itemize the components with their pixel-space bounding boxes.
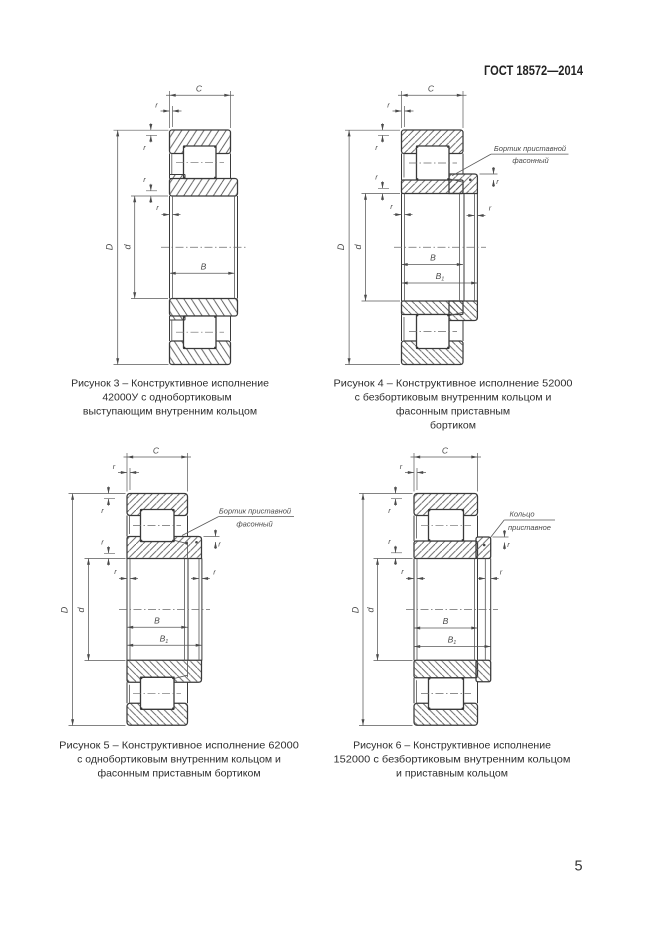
svg-text:фасонный: фасонный: [236, 519, 273, 528]
svg-text:ГОСТ 18572—2014: ГОСТ 18572—2014: [484, 63, 583, 78]
svg-text:C: C: [428, 84, 435, 94]
svg-text:фасонным приставным бортиком: фасонным приставным бортиком: [97, 768, 260, 780]
svg-text:D: D: [105, 243, 115, 250]
svg-text:Рисунок 6 – Конструктивное исп: Рисунок 6 – Конструктивное исполнение: [353, 740, 551, 752]
svg-text:D: D: [351, 606, 361, 613]
svg-text:C: C: [442, 446, 449, 456]
svg-text:приставное: приставное: [508, 523, 551, 532]
svg-text:Рисунок 5 – Конструктивное исп: Рисунок 5 – Конструктивное исполнение 62…: [59, 740, 299, 752]
svg-text:фасонный: фасонный: [512, 156, 549, 165]
svg-text:B: B: [430, 253, 436, 263]
svg-text:152000 с безбортиковым внутрен: 152000 с безбортиковым внутренним кольцо…: [334, 754, 571, 766]
svg-text:и приставным кольцом: и приставным кольцом: [396, 768, 508, 780]
svg-text:Кольцо: Кольцо: [509, 510, 534, 519]
svg-text:D: D: [336, 243, 346, 250]
svg-text:Рисунок 4 – Конструктивное исп: Рисунок 4 – Конструктивное исполнение 52…: [334, 378, 573, 390]
svg-text:фасонным приставным: фасонным приставным: [396, 406, 510, 418]
svg-text:B: B: [201, 262, 207, 272]
svg-text:B: B: [443, 616, 449, 626]
svg-text:C: C: [153, 446, 160, 456]
svg-text:C: C: [196, 84, 203, 94]
svg-text:выступающим внутренним кольцом: выступающим внутренним кольцом: [83, 406, 257, 418]
svg-text:с безбортиковым внутренним кол: с безбортиковым внутренним кольцом и: [355, 392, 552, 404]
svg-text:5: 5: [574, 859, 582, 875]
svg-text:D: D: [60, 606, 70, 613]
svg-text:с однобортиковым внутренним ко: с однобортиковым внутренним кольцом и: [77, 754, 281, 766]
svg-text:42000У с однобортиковым: 42000У с однобортиковым: [102, 392, 231, 404]
svg-text:Бортик приставной: Бортик приставной: [494, 144, 567, 153]
svg-text:бортиком: бортиком: [430, 420, 476, 432]
svg-text:B: B: [154, 615, 160, 625]
svg-text:Бортик приставной: Бортик приставной: [219, 506, 292, 515]
svg-text:Рисунок 3 – Конструктивное исп: Рисунок 3 – Конструктивное исполнение: [71, 378, 269, 390]
